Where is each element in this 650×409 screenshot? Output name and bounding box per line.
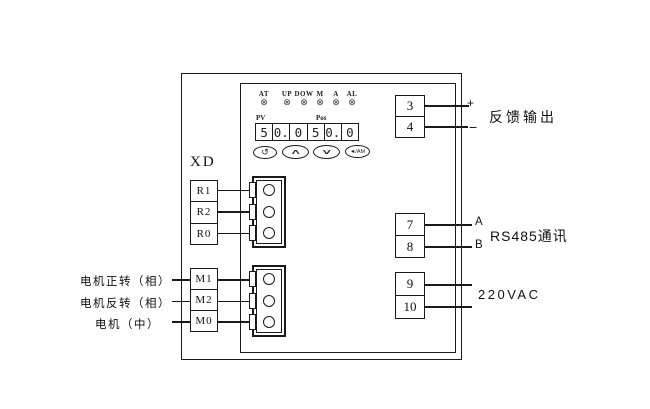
r-terminal-block: R1 R2 R0 [190, 180, 218, 245]
digit-cell: 0. [272, 124, 289, 140]
auto-manual-button: ◄/AM [345, 145, 370, 158]
connector-tab [249, 314, 256, 330]
wiring-diagram: AT ⊗ UP ⊗ DOW ⊗ M ⊗ A ⊗ AL ⊗ PV Pos 5 0.… [0, 0, 650, 409]
connector-tab [249, 225, 256, 241]
wire [425, 105, 469, 107]
terminal-7: 7 [396, 214, 424, 236]
feedback-output-label: 反馈输出 [489, 107, 557, 127]
terminal-r2: R2 [191, 202, 217, 223]
down-arrow-icon: ∨ [320, 148, 332, 155]
up-arrow-icon: ∧ [289, 148, 301, 155]
terminal-8: 8 [396, 236, 424, 257]
digital-display: 5 0. 0 5 0. 0 [255, 123, 359, 141]
wire [172, 321, 190, 323]
connector-block-lower [252, 265, 286, 337]
rs485-line-b-label: B [475, 239, 483, 251]
connector-tab [249, 182, 256, 198]
motor-forward-label: 电机正转（相） [80, 273, 170, 289]
wire [425, 306, 472, 308]
screw-terminal-icon [263, 227, 275, 239]
indicator-at: AT ⊗ [252, 90, 276, 108]
auto-manual-label: ◄/AM [350, 149, 365, 155]
terminal-9: 9 [396, 273, 424, 296]
led-indicator-icon: ⊗ [252, 98, 276, 108]
led-indicator-icon: ⊗ [340, 98, 364, 108]
digit-cell: 5 [307, 124, 324, 140]
terminal-r1: R1 [191, 181, 217, 202]
cycle-button: ↺ [253, 146, 277, 159]
m-terminal-block: M1 M2 M0 [190, 268, 218, 332]
wire [218, 211, 250, 213]
terminal-r0: R0 [191, 224, 217, 244]
wire [218, 190, 250, 192]
up-button: ∧ [282, 145, 309, 159]
rs485-line-a-label: A [475, 216, 483, 228]
power-label: 220VAC [478, 287, 540, 302]
down-button: ∨ [313, 145, 340, 159]
terminal-m1: M1 [191, 269, 217, 290]
digit-cell: 0. [324, 124, 341, 140]
wire [218, 301, 250, 303]
xd-group-label: XD [190, 154, 216, 171]
motor-reverse-label: 电机反转（相） [80, 295, 170, 311]
connector-block-upper [252, 176, 286, 248]
polarity-plus-label: + [467, 96, 474, 110]
wire [172, 279, 190, 281]
terminal-m2: M2 [191, 290, 217, 311]
screw-terminal-icon [263, 316, 275, 328]
polarity-minus-label: − [469, 119, 477, 135]
motor-neutral-label: 电机（中） [80, 316, 170, 332]
wire [218, 279, 250, 281]
digit-cell: 0 [341, 124, 358, 140]
wire [425, 126, 468, 128]
digit-cell: 5 [256, 124, 272, 140]
rs485-terminal-block: 7 8 [395, 213, 425, 258]
screw-terminal-icon [263, 184, 275, 196]
terminal-4: 4 [396, 117, 424, 137]
terminal-m0: M0 [191, 311, 217, 331]
rs485-label: RS485通讯 [490, 226, 568, 246]
screw-terminal-icon [263, 206, 275, 218]
wire [425, 246, 472, 248]
wire [425, 224, 472, 226]
screw-terminal-icon [263, 295, 275, 307]
connector-tab [249, 293, 256, 309]
wire [218, 321, 250, 323]
pv-label: PV [256, 114, 265, 122]
feedback-terminal-block: 3 4 [395, 95, 425, 138]
terminal-10: 10 [396, 296, 424, 318]
cycle-arrow-icon: ↺ [261, 147, 269, 158]
power-terminal-block: 9 10 [395, 272, 425, 319]
digit-cell: 0 [289, 124, 306, 140]
connector-tab [249, 204, 256, 220]
wire [425, 284, 472, 286]
indicator-label: AT [252, 90, 276, 98]
terminal-3: 3 [396, 96, 424, 117]
wire [218, 233, 250, 235]
pos-label: Pos [316, 114, 327, 122]
indicator-label: AL [340, 90, 364, 98]
indicator-al: AL ⊗ [340, 90, 364, 108]
wire [172, 301, 190, 303]
connector-tab [249, 271, 256, 287]
screw-terminal-icon [263, 273, 275, 285]
